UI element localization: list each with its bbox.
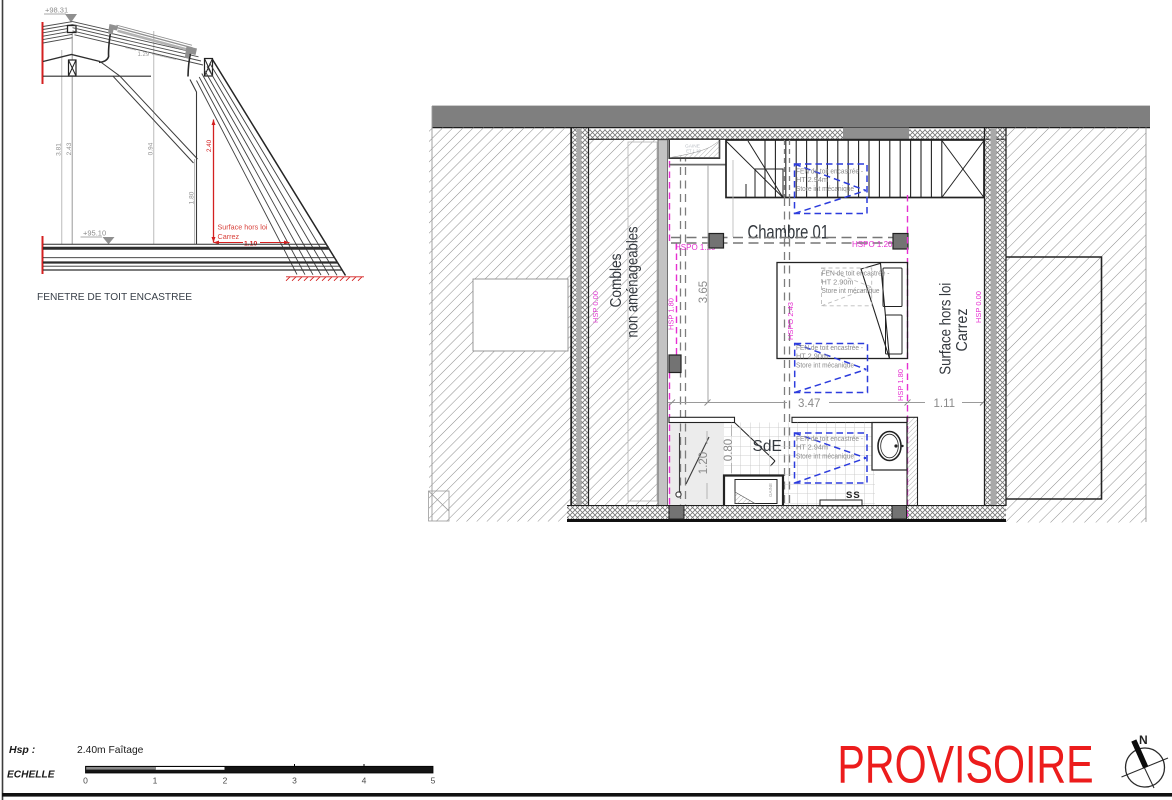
svg-text:2.40m Faîtage: 2.40m Faîtage (77, 745, 144, 756)
svg-text:2.40: 2.40 (206, 139, 213, 152)
svg-text:ET 1.20: ET 1.20 (686, 149, 701, 154)
svg-text:FEN de toit encastrée -: FEN de toit encastrée - (796, 434, 863, 443)
svg-text:GAINE: GAINE (768, 483, 773, 497)
svg-text:+95.10: +95.10 (83, 229, 106, 238)
svg-text:HSP 1.80: HSP 1.80 (667, 298, 676, 330)
svg-text:1.20: 1.20 (698, 452, 710, 474)
svg-text:0.94: 0.94 (148, 142, 155, 155)
svg-text:HT 2.90m: HT 2.90m (796, 352, 828, 361)
svg-text:FEN de toit encastrée -: FEN de toit encastrée - (796, 343, 863, 352)
svg-text:FENETRE DE TOIT ENCASTREE: FENETRE DE TOIT ENCASTREE (37, 292, 192, 303)
svg-text:Hsp :: Hsp : (9, 744, 35, 756)
svg-text:Combles: Combles (608, 253, 625, 307)
svg-text:Surface hors loi: Surface hors loi (218, 223, 268, 232)
svg-text:non aménageables: non aménageables (625, 226, 642, 337)
svg-text:PROVISOIRE: PROVISOIRE (837, 736, 1093, 795)
svg-text:HSPO 2.43: HSPO 2.43 (786, 302, 795, 340)
svg-text:HSPO 1.20: HSPO 1.20 (852, 240, 893, 249)
svg-text:HSP 0.00: HSP 0.00 (974, 291, 983, 323)
svg-text:+98.31: +98.31 (45, 6, 68, 15)
svg-text:3.47: 3.47 (798, 398, 820, 410)
svg-text:3.81: 3.81 (56, 143, 63, 156)
svg-text:ECHELLE: ECHELLE (7, 770, 56, 781)
svg-text:Carrez: Carrez (218, 232, 240, 241)
svg-text:FEN de toit encastrée -: FEN de toit encastrée - (796, 167, 863, 176)
svg-text:Store int mécanique: Store int mécanique (822, 286, 880, 295)
svg-text:5: 5 (431, 776, 436, 786)
svg-text:1.29: 1.29 (138, 52, 150, 58)
svg-text:HT 2.94m: HT 2.94m (796, 175, 828, 184)
svg-text:HSP 0.00: HSP 0.00 (591, 291, 600, 323)
svg-text:0.80: 0.80 (723, 439, 735, 461)
svg-text:0: 0 (83, 776, 88, 786)
svg-text:HT 2.94m: HT 2.94m (796, 443, 828, 452)
svg-text:N: N (1139, 733, 1148, 747)
svg-text:SdE: SdE (753, 438, 782, 455)
svg-text:4: 4 (362, 776, 367, 786)
svg-text:Store int mécanique: Store int mécanique (796, 184, 854, 193)
svg-text:1.80: 1.80 (189, 191, 196, 204)
svg-text:3.65: 3.65 (698, 281, 710, 303)
svg-text:2.43: 2.43 (66, 142, 73, 155)
svg-text:Chambre 01: Chambre 01 (748, 222, 829, 243)
svg-text:3: 3 (292, 776, 297, 786)
svg-text:Store int mécanique: Store int mécanique (796, 360, 854, 369)
svg-text:SS: SS (846, 490, 861, 501)
svg-text:HSP 1.80: HSP 1.80 (896, 369, 905, 401)
svg-text:1.11: 1.11 (934, 398, 956, 410)
svg-text:Surface hors loi: Surface hors loi (937, 283, 954, 375)
svg-text:Store int mécanique: Store int mécanique (796, 451, 854, 460)
svg-text:FEN de toit encastrée -: FEN de toit encastrée - (822, 269, 890, 278)
svg-text:Carrez: Carrez (954, 309, 971, 352)
svg-text:2: 2 (223, 776, 228, 786)
svg-text:1: 1 (153, 776, 158, 786)
